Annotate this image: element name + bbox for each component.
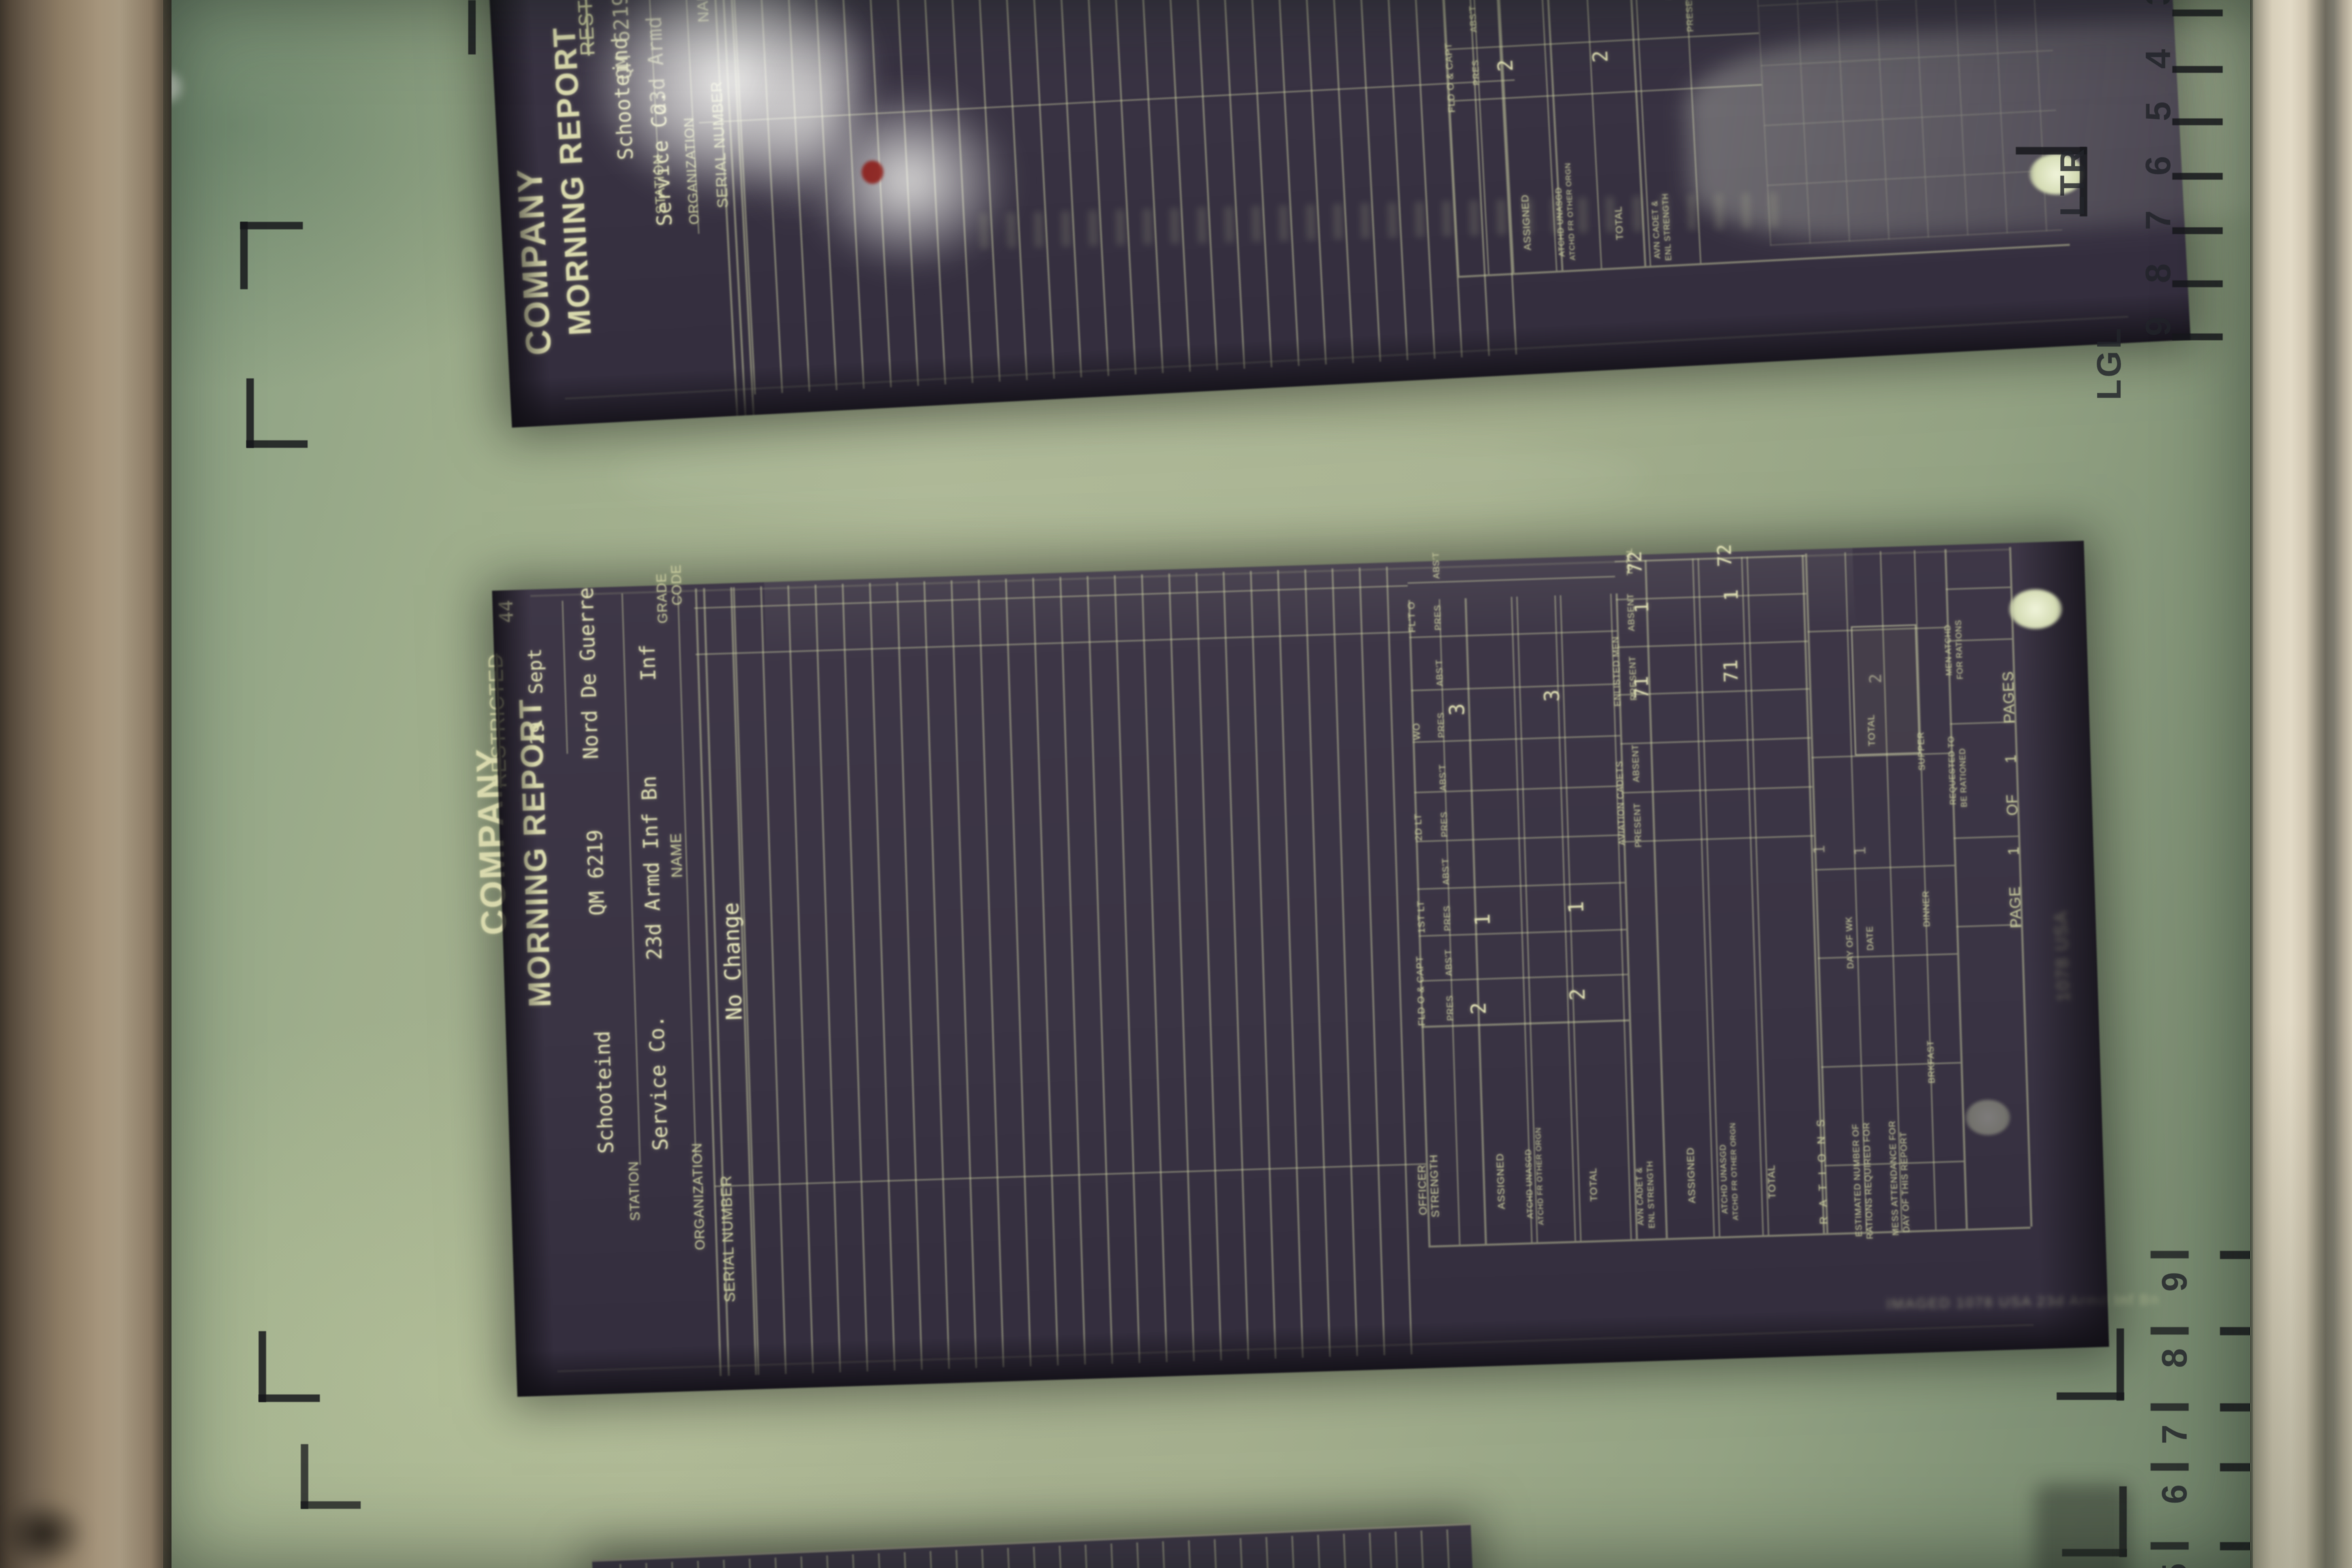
men-atchd-label: MEN ATCHD xyxy=(1944,624,1953,676)
organization-label: ORGANIZATION xyxy=(683,117,702,225)
assigned-row-label: ASSIGNED xyxy=(1495,1153,1507,1209)
record-lines xyxy=(733,566,1431,1375)
ruler-tick xyxy=(2172,333,2223,340)
right-grid-hint xyxy=(1749,0,2062,246)
men-atchd-label-2: FOR RATIONS xyxy=(1954,619,1964,679)
microfilm-screen: RESTRICTED COMPANY MORNING REPORT STATIO… xyxy=(0,0,2352,1568)
avn-section-label: AVN CADET & xyxy=(1635,1167,1645,1226)
grid-line xyxy=(1746,557,1769,1235)
rations-letters: RATIONS xyxy=(1816,1110,1830,1224)
avn-section-label: AVN CADET & xyxy=(1650,200,1661,259)
ruler-number: 6 xyxy=(2141,156,2176,176)
ruler-tick xyxy=(2151,1251,2189,1258)
station-value-2: QM 6219 xyxy=(610,0,636,80)
day-of-wk-label: DAY OF WK xyxy=(1844,916,1855,969)
assigned-row-label: ASSIGNED xyxy=(1520,194,1533,250)
atchd-row-label: ATCHD UNASGD xyxy=(1554,187,1566,257)
pres-header: PRES xyxy=(1471,59,1481,85)
registration-corner xyxy=(2119,1486,2127,1557)
atchd-row-label: ATCHD UNASGD xyxy=(1524,1149,1535,1219)
entry-no-change: No Change xyxy=(720,902,745,1020)
total-box-label: TOTAL xyxy=(1866,714,1876,746)
organization-label: ORGANIZATION xyxy=(691,1143,708,1251)
grid-line xyxy=(1644,560,1667,1239)
grid-line xyxy=(1616,593,1806,600)
pres-header: PRES xyxy=(1433,604,1442,630)
punch-hole xyxy=(2009,589,2062,629)
absent-header: ABSENT xyxy=(1631,745,1641,783)
grid-line xyxy=(1697,558,1720,1237)
morning-report-main: RESTRICTED COMPANY MORNING REPORT 44 Sep… xyxy=(492,540,2109,1396)
fldo-capt-header: FLD O & CAPT xyxy=(1415,955,1426,1026)
total-row-label: TOTAL xyxy=(1588,1167,1599,1201)
registration-corner xyxy=(259,1331,266,1402)
ruler-number: 7 xyxy=(2141,210,2176,230)
officers-assigned-fldo-pres: 2 xyxy=(1469,1002,1490,1015)
ruler-number: 6 xyxy=(2157,1484,2193,1504)
dinner-label: DINNER xyxy=(1921,890,1931,927)
ruler-tick xyxy=(2151,1327,2189,1335)
station-value-2: QM 6219 xyxy=(585,829,608,915)
aviation-cadets-header: AVIATION CADETS xyxy=(1615,761,1627,845)
ruler-number: 9 xyxy=(2141,316,2176,336)
mess-attendance-label-2: DAY OF THIS REPORT xyxy=(1899,1132,1911,1233)
grid-line xyxy=(1692,559,1714,1237)
organization-value-2: 23d Armd xyxy=(644,16,670,115)
grade-header: GRADE xyxy=(655,573,670,624)
officers-assigned-fldo-pres: 2 xyxy=(1496,59,1517,72)
station-label: STATION xyxy=(627,1161,642,1221)
present-header: PRESENT xyxy=(1684,0,1695,32)
imaged-stamp: IMAGED 1078 USA 23d Armd Inf Bn xyxy=(1886,1292,2160,1313)
ruler-number: 5 xyxy=(2141,101,2176,121)
organization-value-3: Inf xyxy=(638,644,660,681)
atchd-row-label-2: ATCHD FR OTHER ORGN xyxy=(1565,162,1578,260)
officers-total-wo-pres: 3 xyxy=(1542,689,1563,702)
flto-header: FL'T O xyxy=(1406,602,1416,633)
present-header: PRESENT xyxy=(1633,803,1643,848)
enlisted-men-header: ENLISTED MEN xyxy=(1611,636,1622,707)
lt2-header: 2D LT xyxy=(1413,813,1423,841)
morning-report-next xyxy=(592,1523,1474,1568)
enlisted-total-total: 72 xyxy=(1715,544,1735,568)
ruler-number: 4 xyxy=(2141,49,2176,69)
avn-section-label-2: ENL STRENGTH xyxy=(1646,1160,1656,1228)
grid-line xyxy=(1617,640,1808,648)
grid-line xyxy=(1818,953,1957,959)
station-value-3: Nord De Guerre xyxy=(576,587,602,759)
registration-corner xyxy=(2062,1549,2127,1556)
total-box-value: 2 xyxy=(1867,673,1884,683)
officers-total-lt1-pres: 1 xyxy=(1567,901,1588,914)
pres-header: PRES xyxy=(1436,712,1445,738)
station-value: Schooteind xyxy=(593,1030,617,1154)
total-row-label: TOTAL xyxy=(1613,206,1625,240)
atchd-row-label: ATCHD UNASGD xyxy=(1718,1144,1729,1214)
pres-header: PRES xyxy=(1439,811,1449,837)
officers-assigned-wo-pres: 3 xyxy=(1448,703,1469,716)
ruler-tick xyxy=(2172,173,2223,180)
organization-value: Service Co. xyxy=(647,1015,672,1151)
ruler-tick xyxy=(2172,280,2223,287)
ruler-number: 9 xyxy=(2157,1272,2193,1292)
grid-line xyxy=(1622,786,1812,794)
ruler-tick xyxy=(2172,118,2223,125)
form-title-company: COMPANY xyxy=(512,167,557,356)
wo-header: WO xyxy=(1411,723,1422,740)
registration-corner xyxy=(246,440,308,448)
brkfast-label: BRKFAST xyxy=(1926,1040,1936,1083)
registration-corner xyxy=(301,1444,308,1509)
ruler-number: 7 xyxy=(2157,1424,2193,1444)
date-rule xyxy=(562,601,568,754)
grid-line xyxy=(1428,1226,2031,1247)
date-day: 29 xyxy=(527,721,547,745)
record-lines xyxy=(728,0,1529,395)
code-header: CODE xyxy=(670,564,685,606)
registration-corner xyxy=(240,222,248,289)
ruler-number: 8 xyxy=(2157,1348,2193,1368)
abst-header: ABS'T xyxy=(1468,5,1478,33)
ruler-number: 3 xyxy=(2141,0,2176,5)
registration-corner xyxy=(2057,1392,2124,1400)
registration-corner xyxy=(259,1394,320,1402)
requested-label-2: BE RATIONED xyxy=(1958,748,1968,807)
registration-corner xyxy=(301,1501,361,1509)
ruler-number: 5 xyxy=(2157,1563,2193,1568)
page-line: PAGE 1 OF 1 PAGES xyxy=(2001,671,2024,929)
rations-mark: 1 xyxy=(1854,846,1869,855)
microfilm-reader-photo: RESTRICTED COMPANY MORNING REPORT STATIO… xyxy=(0,0,2352,1568)
date-month: Sept xyxy=(525,648,546,694)
grid-line xyxy=(1821,1062,1961,1068)
est-rations-label-2: RATIONS REQUIRED FOR xyxy=(1862,1122,1874,1239)
atchd-row-label-2: ATCHD FR OTHER ORGN xyxy=(1729,1122,1740,1220)
officer-strength-label: OFFICER xyxy=(1417,1164,1429,1215)
registration-corner xyxy=(2117,1328,2124,1401)
pres-header: PRES xyxy=(1442,905,1452,931)
date-col-label: DATE xyxy=(1865,926,1874,950)
avn-section-label-2: ENL STRENGTH xyxy=(1661,193,1673,261)
record-lines xyxy=(619,1529,1466,1568)
form-title-company: COMPANY xyxy=(471,747,512,936)
grid-line xyxy=(1458,244,2070,278)
pres-header: PRES xyxy=(1445,995,1454,1021)
enlisted-assigned-absent: 1 xyxy=(1632,602,1652,614)
requested-label: REQUESTED TO xyxy=(1947,736,1957,805)
ruler-tick xyxy=(2172,227,2223,234)
enlisted-assigned-total: 72 xyxy=(1625,551,1645,574)
ruler-number: 8 xyxy=(2141,263,2176,283)
enlisted-total-absent: 1 xyxy=(1722,589,1742,602)
registration-corner xyxy=(240,222,303,229)
date-year: 44 xyxy=(496,600,516,623)
grid-line xyxy=(1741,557,1763,1235)
edge-stamp: 1078 USA xyxy=(2052,910,2072,1002)
grid-line xyxy=(1511,597,1533,1243)
punch-hole xyxy=(1965,1100,2010,1135)
officers-total-fldo-pres: 2 xyxy=(1590,50,1612,63)
reader-frame-left xyxy=(0,0,171,1568)
organization-value-2: 23d Armd Inf Bn xyxy=(640,775,666,960)
ruler-tick xyxy=(2151,1542,2189,1550)
serial-number-header: SERIAL NUMBER xyxy=(719,1175,738,1303)
ruler-tick xyxy=(2151,1463,2189,1471)
total-box xyxy=(1851,624,1921,755)
abst-header: ABS'T xyxy=(1443,949,1453,976)
ruler-tick xyxy=(2151,1403,2189,1411)
grid-line xyxy=(1815,865,1955,870)
assigned-row-label: ASSIGNED xyxy=(1686,1147,1698,1204)
grid-line xyxy=(1623,835,1814,843)
grid-line xyxy=(1620,737,1811,745)
registration-tick xyxy=(468,0,476,54)
officers-total-fldo-pres: 2 xyxy=(1568,988,1589,1001)
size-label-ltr: LTR xyxy=(2055,147,2089,216)
atchd-row-label-2: ATCHD FR OTHER ORGN xyxy=(1535,1127,1546,1225)
size-label-lgl: LGL xyxy=(2092,326,2126,400)
registration-corner xyxy=(246,378,254,448)
rations-mark: 1 xyxy=(1813,845,1828,854)
officer-strength-label-2: STRENGTH xyxy=(1429,1154,1442,1218)
total-row-label: TOTAL xyxy=(1766,1164,1778,1198)
abst-header: ABS'T xyxy=(1438,764,1448,791)
glare-band xyxy=(612,429,1647,524)
enlisted-total-present: 71 xyxy=(1721,659,1741,683)
morning-report-top: RESTRICTED COMPANY MORNING REPORT STATIO… xyxy=(470,0,2191,427)
reader-frame-right xyxy=(2250,0,2352,1568)
abst-header: ABS'T xyxy=(1435,659,1444,687)
grid-line xyxy=(1914,550,1936,1230)
name-header: NAME xyxy=(668,832,685,878)
officers-assigned-lt1-pres: 1 xyxy=(1473,913,1494,926)
name-header: NAME xyxy=(694,0,711,22)
ruler-tick xyxy=(2172,66,2223,73)
lt1-header: 1ST LT xyxy=(1416,900,1426,934)
grid-line xyxy=(1946,587,2010,590)
ruler-tick xyxy=(2172,10,2223,16)
enlisted-assigned-present: 71 xyxy=(1632,676,1652,700)
abst-header: ABS'T xyxy=(1431,552,1441,579)
grid-line xyxy=(1679,0,1701,263)
abst-header: ABS'T xyxy=(1441,858,1450,885)
